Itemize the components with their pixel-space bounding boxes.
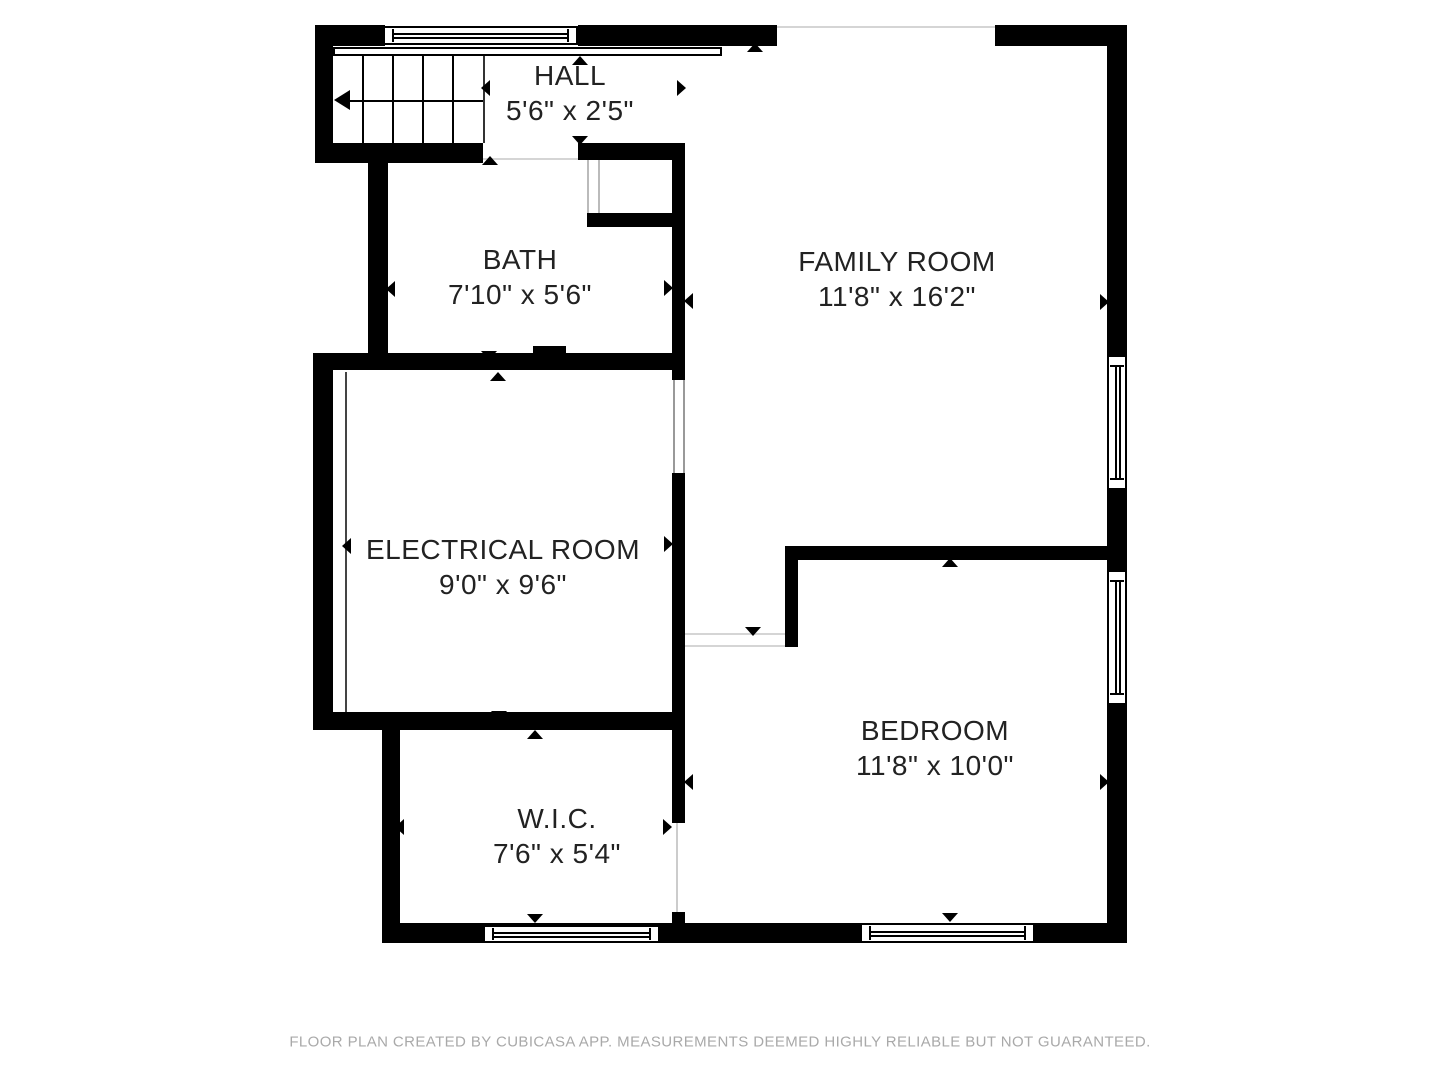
wall: [1107, 25, 1127, 355]
window-pane-line: [392, 29, 394, 42]
wall: [672, 912, 685, 923]
window-pane-line: [869, 926, 871, 940]
footer-disclaimer: FLOOR PLAN CREATED BY CUBICASA APP. MEAS…: [289, 1034, 1150, 1051]
wall: [315, 143, 483, 163]
room-name: ELECTRICAL ROOM: [366, 534, 640, 565]
wall: [672, 145, 685, 380]
window-pane-line: [649, 928, 651, 940]
window-pane-line: [1110, 478, 1124, 480]
window-pane-line: [492, 936, 651, 938]
room-dimensions: 11'8" x 16'2": [798, 279, 995, 314]
window-pane-line: [1115, 365, 1117, 480]
window-pane-line: [567, 29, 569, 42]
direction-arrow-down: [491, 711, 507, 720]
window: [1107, 570, 1127, 705]
window-pane-line: [1119, 580, 1121, 695]
window-pane-line: [1110, 693, 1124, 695]
room-name: BATH: [483, 244, 558, 275]
window: [483, 925, 660, 943]
wall: [1107, 705, 1127, 943]
room-dimensions: 7'10" x 5'6": [448, 277, 592, 312]
room-label-bath: BATH7'10" x 5'6": [448, 242, 592, 312]
room-dimensions: 5'6" x 2'5": [506, 93, 634, 128]
direction-arrow-left: [395, 819, 404, 835]
direction-arrow-down: [942, 913, 958, 922]
direction-arrow-up: [527, 730, 543, 739]
wall: [368, 143, 388, 370]
direction-arrow-left: [684, 774, 693, 790]
room-label-wic: W.I.C.7'6" x 5'4": [493, 801, 621, 871]
direction-arrow-left: [386, 281, 395, 297]
direction-arrow-up: [490, 372, 506, 381]
stair-railing: [333, 47, 722, 56]
window-pane-line: [1110, 580, 1124, 582]
stair-direction-line: [345, 100, 483, 102]
wall: [785, 546, 798, 647]
opening-line: [685, 633, 785, 635]
direction-arrow-up: [482, 156, 498, 165]
window: [860, 923, 1035, 943]
opening-line: [587, 160, 589, 213]
room-name: W.I.C.: [517, 803, 596, 834]
wall: [578, 143, 685, 160]
window-pane-line: [492, 932, 651, 934]
opening-line: [673, 380, 675, 473]
direction-arrow-right: [664, 536, 673, 552]
opening-line: [683, 380, 685, 473]
window-pane-line: [1115, 580, 1117, 695]
window: [383, 26, 578, 45]
direction-arrow-right: [1100, 294, 1109, 310]
direction-arrow-up: [747, 43, 763, 52]
room-name: BEDROOM: [861, 715, 1009, 746]
floor-plan: HALL5'6" x 2'5"BATH7'10" x 5'6"FAMILY RO…: [0, 0, 1440, 1080]
direction-arrow-left: [342, 538, 351, 554]
direction-arrow-down: [527, 914, 543, 923]
room-dimensions: 7'6" x 5'4": [493, 836, 621, 871]
direction-arrow-right: [677, 80, 686, 96]
wall: [533, 346, 566, 362]
stair-direction-arrow: [334, 90, 350, 110]
opening-line: [483, 56, 485, 143]
direction-arrow-right: [664, 280, 673, 296]
window-pane-line: [392, 37, 569, 39]
wall: [313, 353, 333, 730]
room-dimensions: 11'8" x 10'0": [856, 748, 1014, 783]
opening-line: [685, 645, 785, 647]
direction-arrow-right: [1100, 774, 1109, 790]
opening-line: [598, 160, 600, 213]
direction-arrow-down: [745, 627, 761, 636]
wall: [587, 213, 677, 227]
direction-arrow-left: [684, 293, 693, 309]
room-name: HALL: [534, 60, 606, 91]
room-label-family-room: FAMILY ROOM11'8" x 16'2": [798, 244, 995, 314]
direction-arrow-left: [481, 80, 490, 96]
room-label-bedroom: BEDROOM11'8" x 10'0": [856, 713, 1014, 783]
wall: [672, 473, 685, 823]
window-pane-line: [492, 928, 494, 940]
window-pane-line: [1119, 365, 1121, 480]
window-pane-line: [869, 931, 1026, 933]
room-dimensions: 9'0" x 9'6": [366, 567, 640, 602]
wall: [1107, 490, 1127, 570]
opening-line: [777, 26, 995, 28]
window-pane-line: [1110, 365, 1124, 367]
room-label-electrical-room: ELECTRICAL ROOM9'0" x 9'6": [366, 532, 640, 602]
window-pane-line: [869, 935, 1026, 937]
room-name: FAMILY ROOM: [798, 246, 995, 277]
room-label-hall: HALL5'6" x 2'5": [506, 58, 634, 128]
direction-arrow-up: [942, 558, 958, 567]
window-pane-line: [1024, 926, 1026, 940]
direction-arrow-right: [663, 819, 672, 835]
direction-arrow-down: [572, 136, 588, 145]
window: [1107, 355, 1127, 490]
direction-arrow-down: [481, 351, 497, 360]
window-pane-line: [392, 33, 569, 35]
opening-line: [676, 823, 678, 912]
